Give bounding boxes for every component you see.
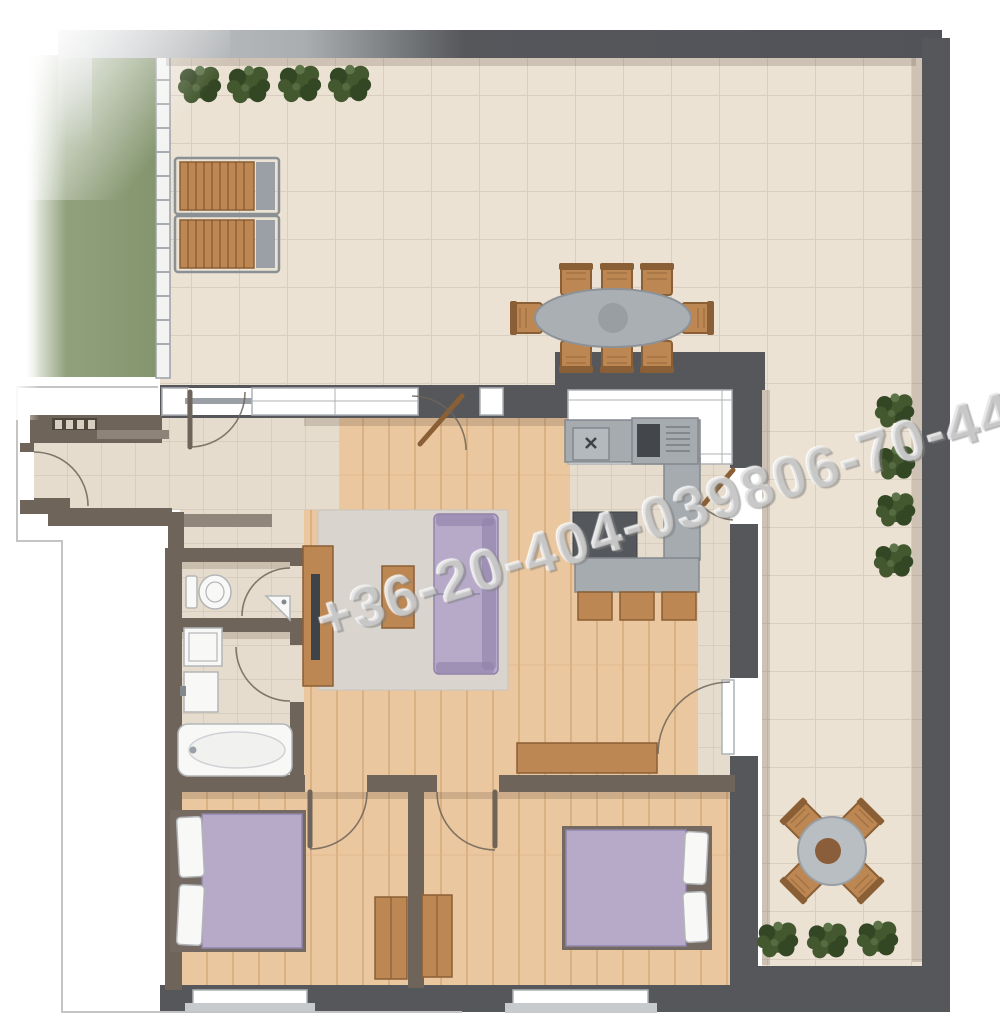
tv-screen xyxy=(311,574,320,660)
plant-icon xyxy=(874,543,913,577)
kitchen xyxy=(565,418,700,620)
bedroom2-window-sill xyxy=(505,1003,657,1013)
dining-chair xyxy=(640,341,674,373)
floor-plan-canvas xyxy=(0,0,1000,1023)
bath-door-opening xyxy=(290,645,304,702)
stove xyxy=(573,428,609,460)
grass-strip xyxy=(26,55,160,377)
hall-shelf xyxy=(97,430,169,439)
right-boundary-wall xyxy=(922,38,950,1000)
washing-machine xyxy=(184,628,222,666)
bar-stool xyxy=(662,592,696,620)
top-boundary-wall xyxy=(58,30,942,58)
wc-top-wall xyxy=(165,548,304,562)
bath-faucet xyxy=(190,747,197,754)
double-bed-1 xyxy=(170,810,306,952)
dining-table-center xyxy=(598,303,628,333)
terrace-door2-panel xyxy=(722,680,734,754)
plant-icon xyxy=(227,66,270,103)
corridor-left-wall xyxy=(168,512,184,552)
hall-step xyxy=(172,514,272,527)
wc-door-opening xyxy=(290,566,304,618)
plant-icon xyxy=(178,66,221,103)
sink-bowl xyxy=(637,424,660,457)
bedroom2-door-opening xyxy=(437,775,499,792)
sun-loungers xyxy=(175,158,279,272)
sun-lounger xyxy=(175,216,279,272)
plant-icon xyxy=(807,923,848,959)
bathroom-sink xyxy=(180,672,218,712)
toilet xyxy=(186,575,231,609)
sideboard xyxy=(517,743,657,773)
coffee-table xyxy=(382,566,414,628)
bench xyxy=(575,558,699,592)
plant-icon xyxy=(875,393,914,427)
left-wall-stub xyxy=(58,42,92,146)
pillow xyxy=(683,891,709,942)
dining-chair xyxy=(640,263,674,295)
small-window xyxy=(480,388,503,415)
glass-railing xyxy=(156,56,170,378)
bar-stool xyxy=(620,592,654,620)
plant-icon xyxy=(328,65,371,102)
pillow xyxy=(176,816,204,877)
bathtub xyxy=(178,724,292,776)
entry-door-opening xyxy=(20,452,34,500)
sun-lounger xyxy=(175,158,279,214)
pillow xyxy=(176,884,204,945)
bedroom1-door-opening xyxy=(305,775,367,792)
kitchen-sink xyxy=(632,418,698,464)
bar-stool xyxy=(578,592,612,620)
plant-icon xyxy=(278,65,321,102)
kitchen-island xyxy=(573,512,637,560)
plant-icon xyxy=(857,921,898,957)
bottom-right-wall xyxy=(733,966,950,1012)
plant-icon xyxy=(876,492,915,526)
floor-plan: +36-20-404-039806-70-442-2 xyxy=(0,0,1000,1023)
pillow xyxy=(683,831,709,884)
tv-cabinet xyxy=(303,546,333,686)
plant-icon xyxy=(757,922,798,958)
double-bed-2 xyxy=(562,826,712,950)
plant-icon xyxy=(876,445,915,479)
kitchen-terrace-door-opening xyxy=(730,468,758,524)
sofa xyxy=(434,514,498,674)
hall-bottom-wall-b xyxy=(48,508,172,526)
bistro-table-center xyxy=(815,838,841,864)
kitchen-counter-right xyxy=(664,458,700,560)
hall-window xyxy=(162,388,188,415)
